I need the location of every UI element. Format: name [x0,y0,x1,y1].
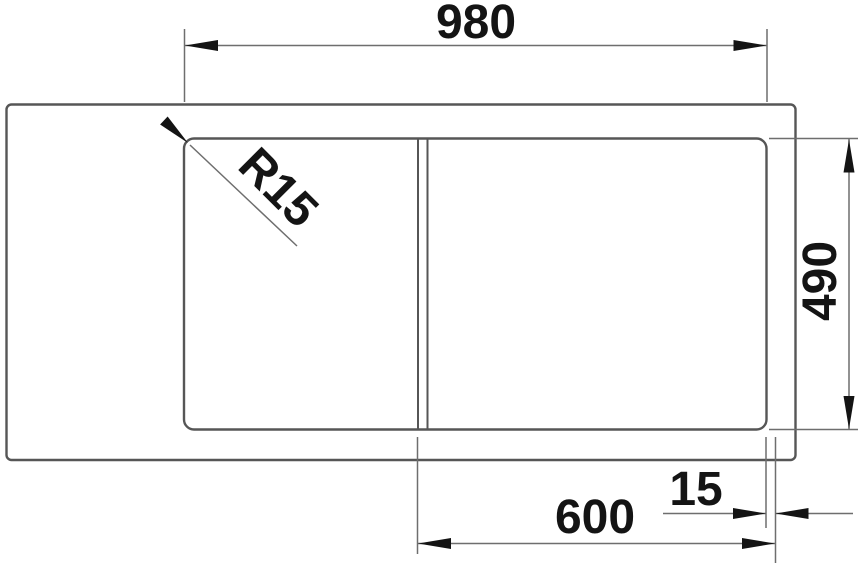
arrowhead-width-right [734,40,767,51]
sink-dimension-drawing: 980 490 600 15 [0,0,867,564]
arrowhead-width-left [185,40,218,51]
arrowhead-depth-bottom [844,396,855,429]
overall-width-label: 980 [436,0,516,49]
annotation-corner-radius: R15 [160,116,328,246]
arrowhead-gap-right [776,508,809,519]
arrowhead-bowl-left [418,538,451,549]
corner-radius-label: R15 [228,138,328,238]
part-geometry [7,105,796,461]
dimension-overall-width: 980 [185,0,768,102]
dimension-overall-depth: 490 [769,139,858,430]
edge-gap-label: 15 [669,463,722,516]
arrowhead-gap-left [733,508,766,519]
outer-flange-outline [7,105,796,461]
overall-depth-label: 490 [794,241,847,321]
arrowhead-depth-top [844,140,855,173]
arrowhead-bowl-right [742,538,775,549]
drawing-canvas: 980 490 600 15 [0,0,867,564]
bowl-section-width-label: 600 [555,491,635,544]
